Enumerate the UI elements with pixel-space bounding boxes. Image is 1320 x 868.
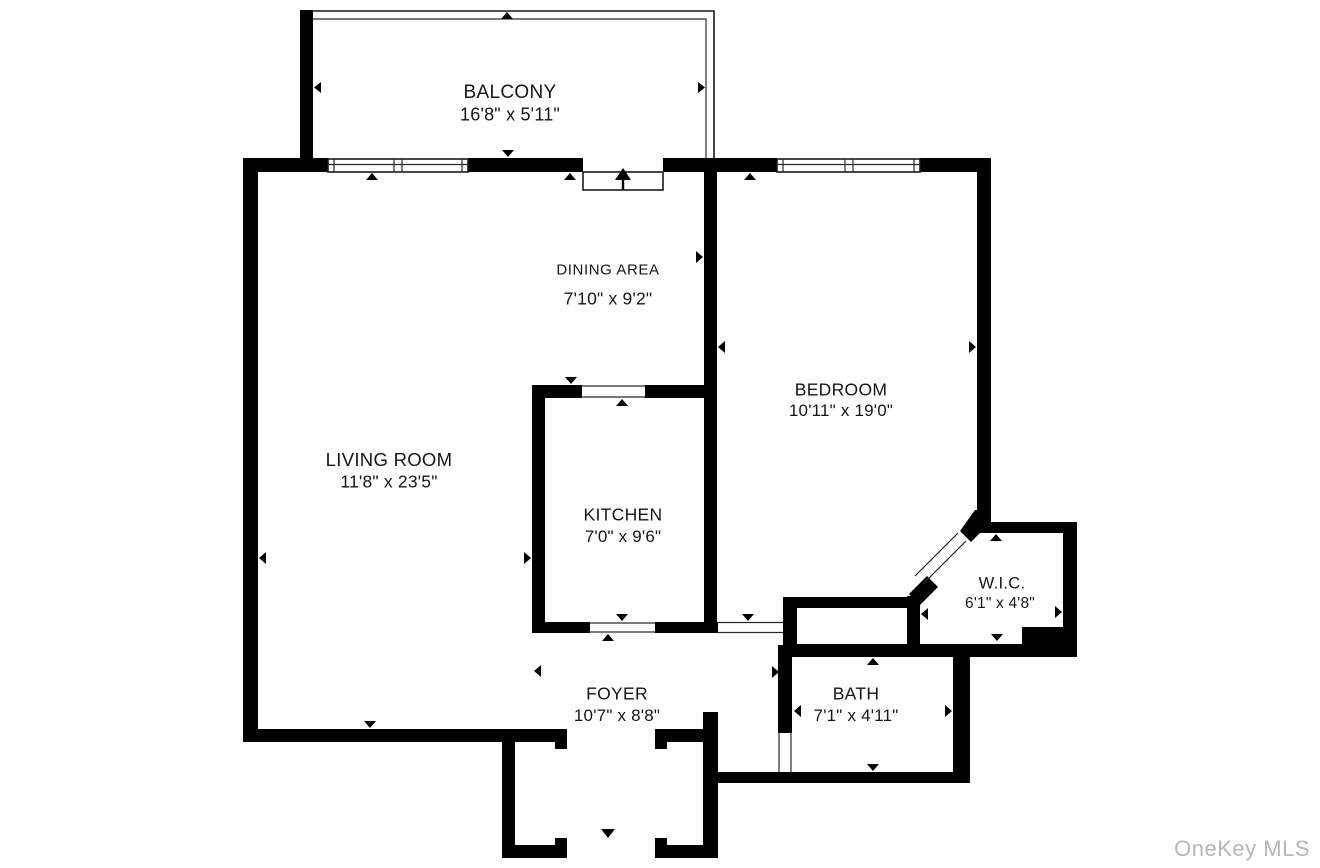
- bath-top-wall: [783, 644, 1077, 657]
- room-label-balcony: BALCONY: [464, 82, 557, 104]
- room-dims-living: 11'8" x 23'5": [340, 472, 437, 493]
- bath-bottom-wall: [717, 772, 970, 783]
- room-label-living: LIVING ROOM: [326, 449, 453, 471]
- living-room-window-icon: [328, 159, 468, 172]
- bedroom-right-wall: [977, 158, 991, 525]
- right-closet-bottom-wall: [655, 845, 717, 858]
- room-dims-dining: 7'10" x 9'2": [564, 289, 653, 310]
- kitchen-bottom-wall-a: [532, 622, 590, 633]
- wic-door-icon: [915, 533, 966, 584]
- room-label-bath: BATH: [833, 684, 880, 705]
- alcove-top-wall: [783, 597, 908, 608]
- door-jamb: [555, 742, 567, 749]
- room-dims-wic: 6'1" x 4'8": [965, 595, 1035, 613]
- floor-plan-page: BALCONY 16'8" x 5'11" DINING AREA 7'10" …: [0, 0, 1320, 868]
- living-bottom-wall: [243, 729, 567, 742]
- right-closet-right-wall: [703, 712, 718, 858]
- kitchen-left-wall: [532, 385, 545, 632]
- left-closet-left-wall: [502, 729, 515, 858]
- room-label-wic: W.I.C.: [979, 575, 1026, 594]
- divider-wall: [704, 172, 717, 632]
- top-wall-b: [468, 158, 583, 172]
- kitchen-top-wall-a: [532, 385, 582, 398]
- room-dims-kitchen: 7'0" x 9'6": [585, 527, 662, 547]
- bath-right-wall: [953, 645, 970, 783]
- room-dims-bedroom: 10'11" x 19'0": [789, 401, 893, 421]
- room-dims-balcony: 16'8" x 5'11": [460, 105, 560, 126]
- entry-arrow-icon: [601, 829, 615, 838]
- walls: [243, 10, 1077, 858]
- alcove-left-wall: [783, 597, 797, 648]
- wic-angled-corner: [960, 510, 991, 542]
- balcony-door-icon: [583, 168, 663, 190]
- room-dims-bath: 7'1" x 4'11": [814, 706, 899, 726]
- kitchen-bottom-wall-b: [655, 622, 718, 633]
- watermark: OneKey MLS: [1174, 836, 1310, 862]
- door-jamb: [655, 742, 667, 749]
- wic-top-wall: [977, 522, 1077, 533]
- room-label-kitchen: KITCHEN: [584, 505, 663, 526]
- bedroom-window-icon: [777, 159, 920, 172]
- door-jamb: [555, 838, 567, 845]
- left-wall: [243, 158, 258, 742]
- door-jamb: [655, 838, 667, 845]
- room-label-foyer: FOYER: [586, 684, 648, 705]
- bath-left-wall: [778, 645, 792, 733]
- kitchen-top-wall-b: [645, 385, 717, 398]
- right-closet-top-wall: [655, 729, 703, 742]
- room-label-bedroom: BEDROOM: [795, 380, 888, 401]
- room-dims-foyer: 10'7" x 8'8": [574, 706, 660, 726]
- wic-left-jamb: [907, 596, 920, 644]
- top-wall-c: [663, 158, 777, 172]
- wic-corner-notch: [1022, 627, 1077, 645]
- left-closet-bottom-wall: [502, 845, 567, 858]
- floor-plan-drawing: [0, 0, 1320, 868]
- balcony-left-wall: [300, 10, 313, 160]
- room-label-dining: DINING AREA: [556, 262, 659, 279]
